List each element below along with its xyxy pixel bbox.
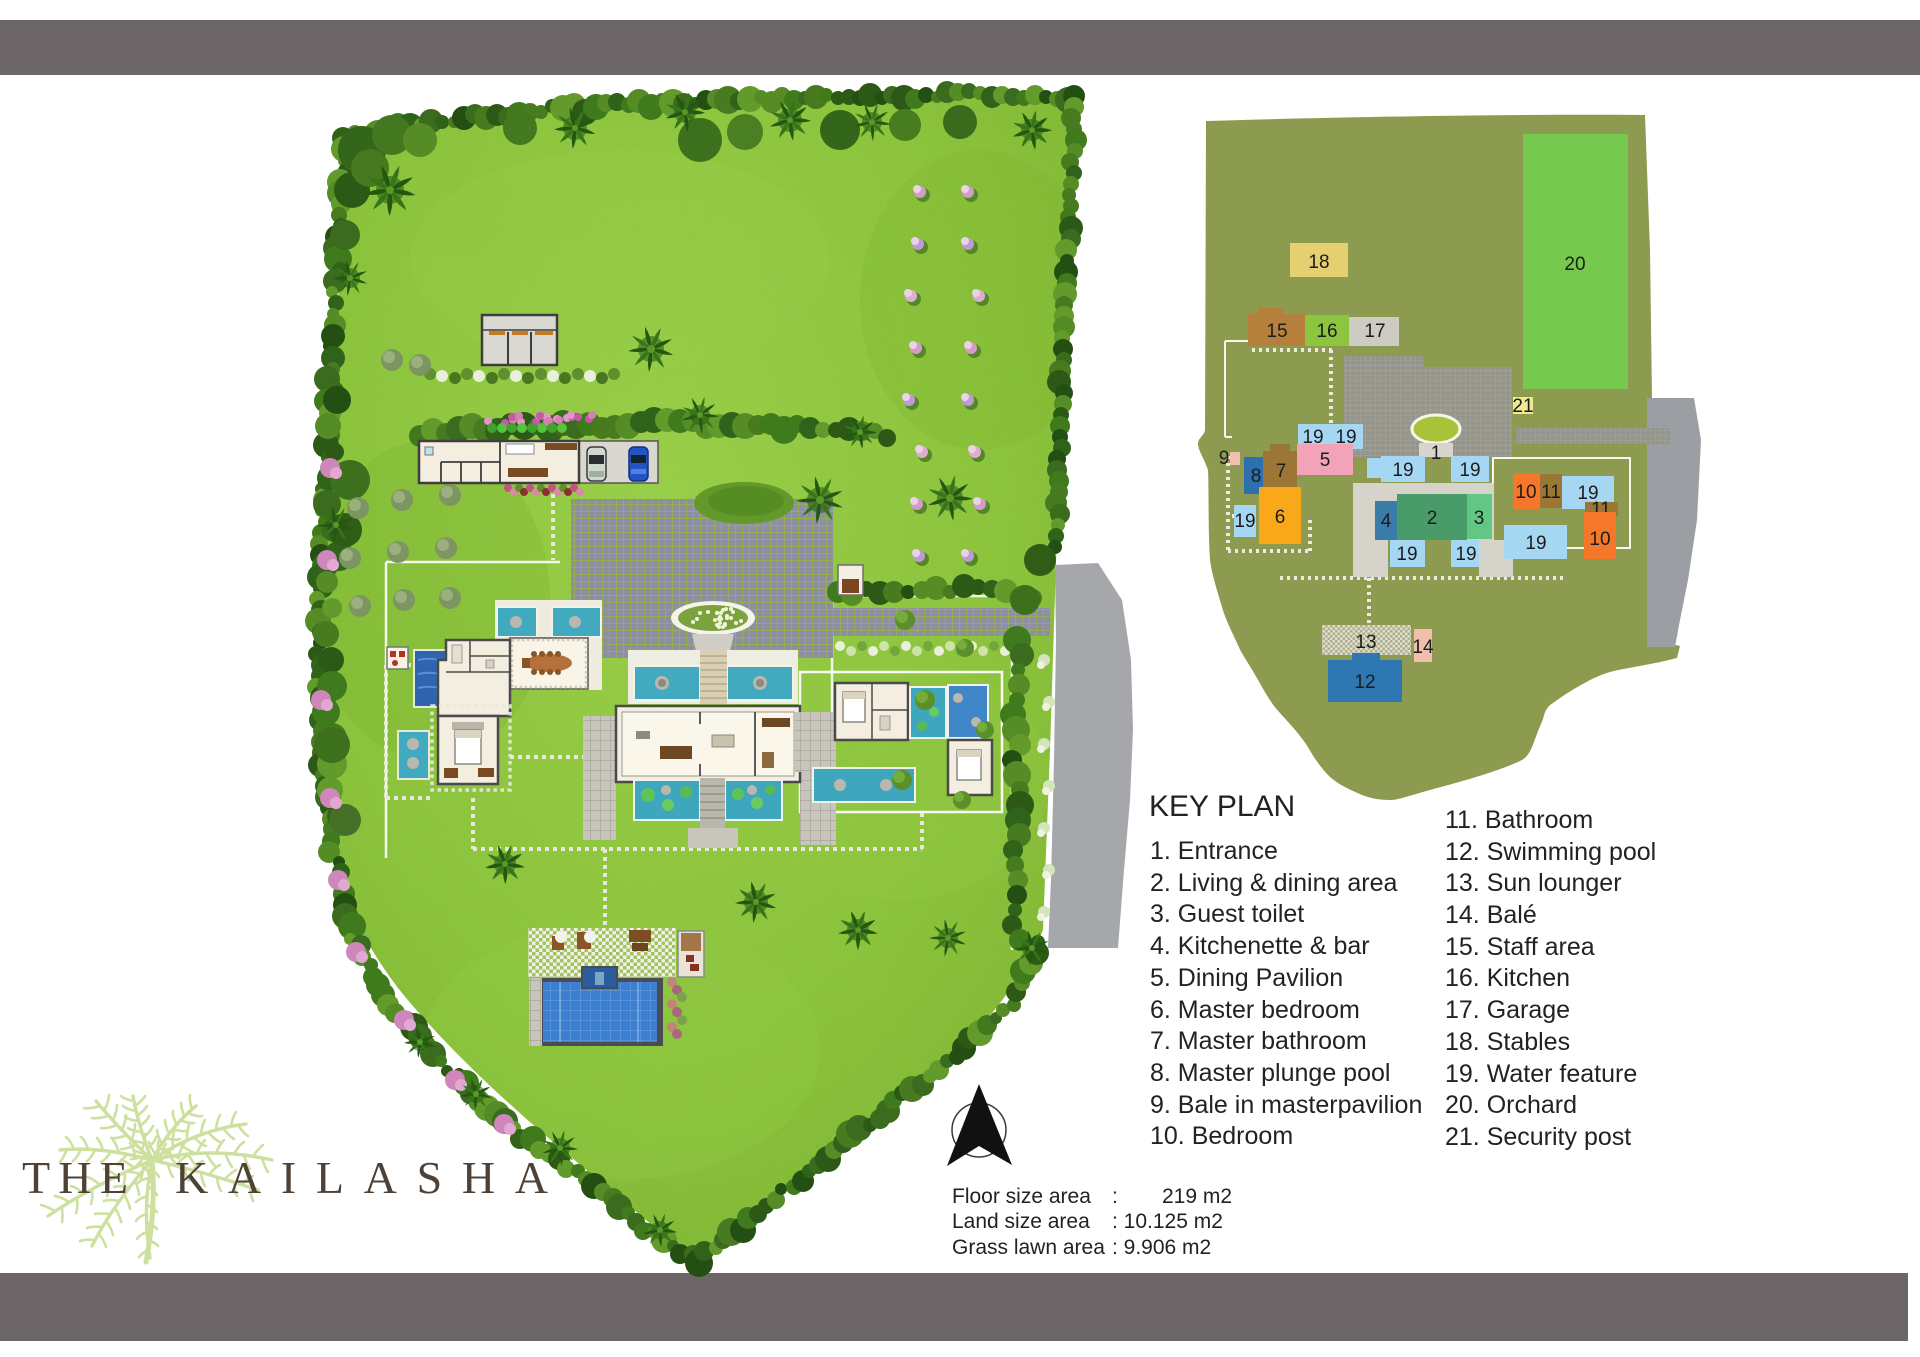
- svg-text:20: 20: [1564, 254, 1585, 275]
- svg-text:10. Bedroom: 10. Bedroom: [1150, 1122, 1293, 1150]
- svg-text:15: 15: [1266, 321, 1287, 342]
- svg-text:19: 19: [1234, 511, 1255, 532]
- svg-text:8. Master plunge pool: 8. Master plunge pool: [1150, 1059, 1390, 1087]
- svg-text:16: 16: [1316, 321, 1337, 342]
- svg-text:2. Living & dining area: 2. Living & dining area: [1150, 869, 1397, 897]
- svg-text:1. Entrance: 1. Entrance: [1150, 837, 1278, 865]
- svg-text:THE: THE: [22, 1152, 128, 1203]
- svg-text:9: 9: [1219, 448, 1230, 469]
- svg-text:13: 13: [1355, 632, 1376, 653]
- svg-text:: 9.906 m2: : 9.906 m2: [1112, 1236, 1211, 1259]
- svg-text:17: 17: [1364, 321, 1385, 342]
- svg-text:9. Bale in masterpavilion: 9. Bale in masterpavilion: [1150, 1091, 1422, 1119]
- svg-text::: :: [1112, 1185, 1118, 1208]
- svg-text:16. Kitchen: 16. Kitchen: [1445, 964, 1570, 992]
- svg-text:Land size area: Land size area: [952, 1210, 1090, 1233]
- svg-text:7. Master bathroom: 7. Master bathroom: [1150, 1027, 1367, 1055]
- svg-text:7: 7: [1276, 461, 1287, 482]
- svg-text:19: 19: [1525, 533, 1546, 554]
- svg-text:13. Sun lounger: 13. Sun lounger: [1445, 869, 1622, 897]
- svg-text:18: 18: [1308, 252, 1329, 273]
- svg-text:2: 2: [1427, 508, 1438, 529]
- svg-text:14. Balé: 14. Balé: [1445, 901, 1537, 929]
- svg-text:3: 3: [1474, 508, 1485, 529]
- svg-text:6. Master bedroom: 6. Master bedroom: [1150, 996, 1360, 1024]
- svg-text:21. Security post: 21. Security post: [1445, 1123, 1631, 1151]
- svg-text:6: 6: [1275, 507, 1286, 528]
- svg-text:19: 19: [1392, 460, 1413, 481]
- svg-text:11. Bathroom: 11. Bathroom: [1445, 806, 1593, 834]
- svg-text:21: 21: [1512, 396, 1533, 417]
- svg-text:Floor size area: Floor size area: [952, 1185, 1091, 1208]
- svg-text:219 m2: 219 m2: [1162, 1185, 1232, 1208]
- svg-text:5: 5: [1320, 450, 1331, 471]
- svg-text:14: 14: [1412, 637, 1434, 658]
- svg-text:19. Water feature: 19. Water feature: [1445, 1060, 1637, 1088]
- svg-text:11: 11: [1541, 482, 1561, 503]
- svg-text:Grass lawn area: Grass lawn area: [952, 1236, 1105, 1259]
- svg-text:17. Garage: 17. Garage: [1445, 996, 1570, 1024]
- svg-text:3. Guest toilet: 3. Guest toilet: [1150, 900, 1304, 928]
- svg-text:10: 10: [1589, 529, 1610, 550]
- svg-text:19: 19: [1396, 544, 1417, 565]
- svg-text:4: 4: [1381, 511, 1392, 532]
- svg-text:4. Kitchenette & bar: 4. Kitchenette & bar: [1150, 932, 1370, 960]
- svg-text:1: 1: [1431, 443, 1442, 464]
- svg-text:20. Orchard: 20. Orchard: [1445, 1091, 1577, 1119]
- svg-text:12: 12: [1354, 672, 1375, 693]
- svg-text:12. Swimming pool: 12. Swimming pool: [1445, 838, 1656, 866]
- svg-text:10: 10: [1515, 482, 1536, 503]
- svg-text:19: 19: [1459, 460, 1480, 481]
- svg-text:: 10.125 m2: : 10.125 m2: [1112, 1210, 1223, 1233]
- svg-text:KEY PLAN: KEY PLAN: [1149, 790, 1295, 823]
- svg-text:18. Stables: 18. Stables: [1445, 1028, 1570, 1056]
- svg-text:5. Dining Pavilion: 5. Dining Pavilion: [1150, 964, 1343, 992]
- svg-text:19: 19: [1455, 544, 1476, 565]
- svg-text:8: 8: [1251, 466, 1262, 487]
- svg-text:15. Staff area: 15. Staff area: [1445, 933, 1595, 961]
